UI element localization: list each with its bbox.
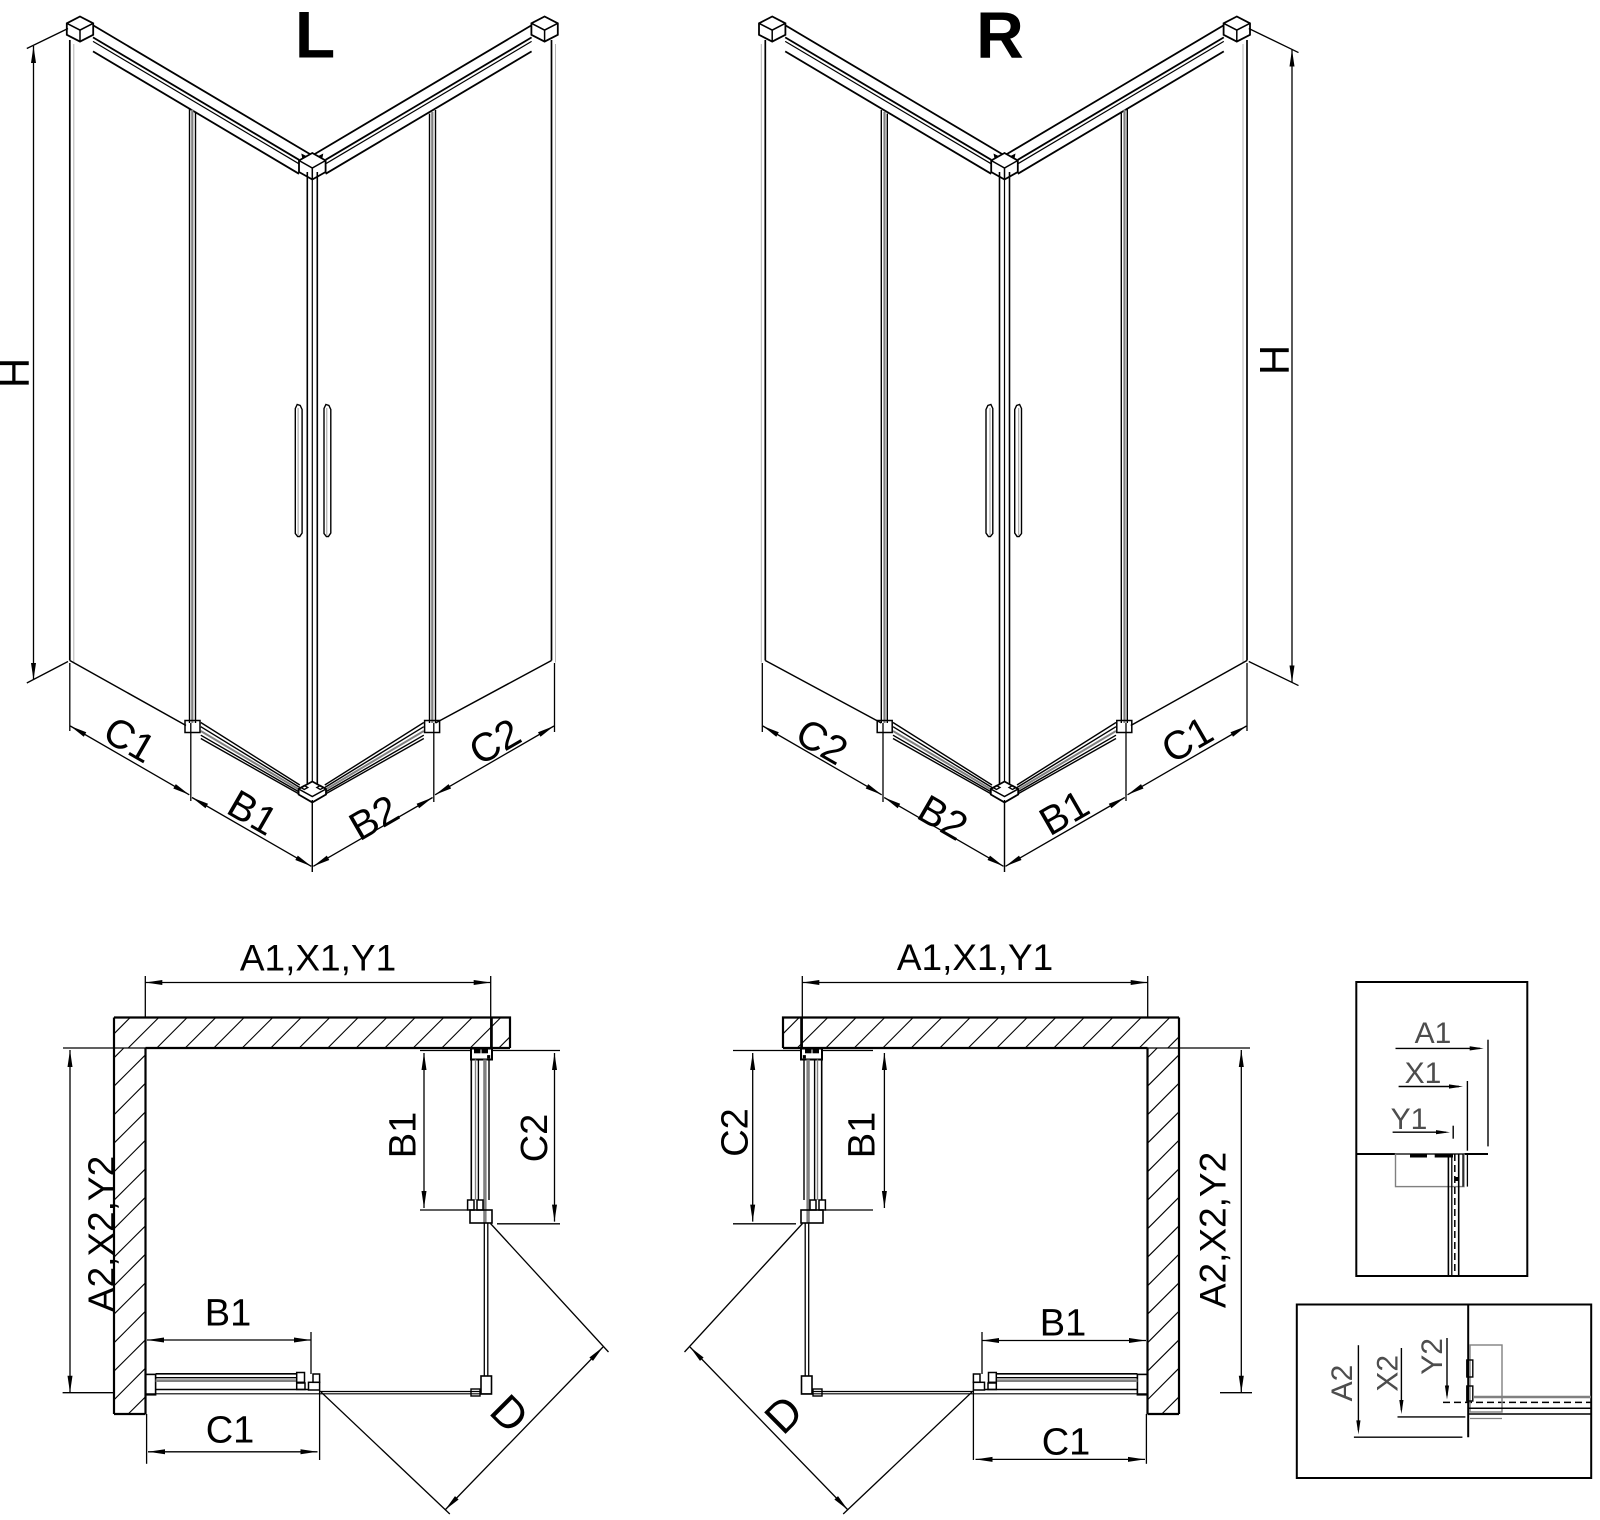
svg-text:A2,X2,Y2: A2,X2,Y2 — [81, 1156, 122, 1312]
svg-text:A1,X1,Y1: A1,X1,Y1 — [897, 937, 1053, 978]
svg-text:A2,X2,Y2: A2,X2,Y2 — [1192, 1152, 1233, 1308]
svg-text:Y2: Y2 — [1416, 1338, 1449, 1375]
svg-text:C1: C1 — [206, 1410, 255, 1452]
svg-text:C2: C2 — [714, 1108, 756, 1157]
svg-text:H: H — [1251, 345, 1298, 375]
svg-text:A2: A2 — [1326, 1365, 1359, 1402]
svg-text:H: H — [0, 358, 38, 388]
svg-text:Y1: Y1 — [1391, 1103, 1428, 1136]
svg-text:A1: A1 — [1415, 1017, 1452, 1050]
svg-text:R: R — [976, 0, 1024, 71]
svg-text:X2: X2 — [1372, 1355, 1405, 1392]
svg-text:A1,X1,Y1: A1,X1,Y1 — [240, 937, 396, 978]
svg-text:C2: C2 — [514, 1114, 556, 1163]
svg-text:B1: B1 — [1040, 1303, 1086, 1345]
svg-text:B1: B1 — [383, 1112, 425, 1158]
svg-text:L: L — [295, 0, 335, 71]
svg-text:C1: C1 — [1042, 1422, 1091, 1464]
svg-text:B1: B1 — [205, 1293, 251, 1335]
svg-text:B1: B1 — [842, 1112, 884, 1158]
svg-text:X1: X1 — [1405, 1057, 1442, 1090]
